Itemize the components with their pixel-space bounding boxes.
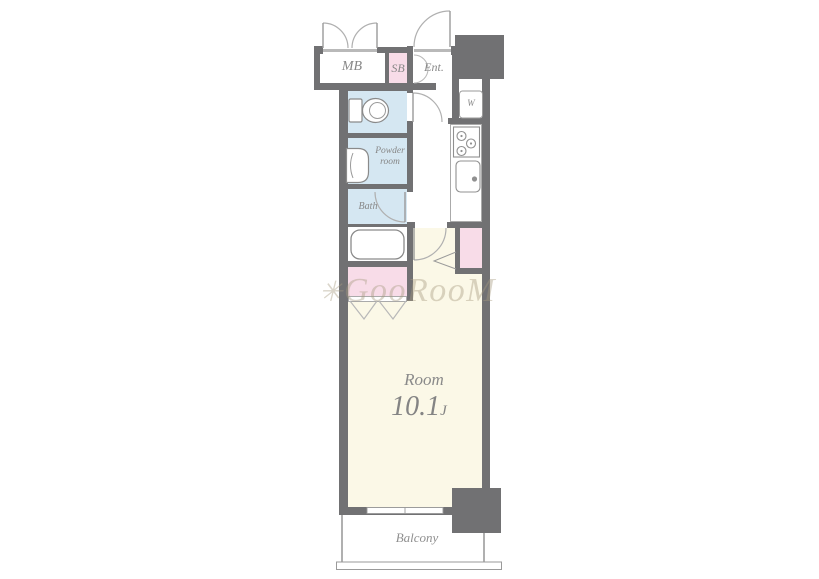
wall	[455, 228, 460, 268]
entrance-label: Ent.	[424, 61, 444, 74]
wall-under-mb-doors	[323, 49, 377, 52]
room-size-label: 10.1J	[391, 392, 447, 421]
wall	[340, 85, 413, 91]
watermark: ✳GooRooM	[319, 272, 496, 310]
powder-room-label-line1: Powder	[375, 146, 405, 157]
pillar-top	[455, 35, 504, 79]
powder-room-label: Powder room	[375, 146, 405, 168]
floor-plan: MB SB Ent. W Powder room Bath Room 10.1J…	[0, 0, 819, 579]
toilet-room	[348, 91, 407, 133]
wall	[385, 52, 389, 83]
bath-label: Bath	[359, 202, 378, 213]
closet-right	[460, 228, 482, 268]
washer-label: W	[467, 99, 475, 108]
kitchen-counter	[450, 124, 482, 222]
room-size-unit: J	[440, 403, 447, 419]
entrance-door-arc	[414, 11, 450, 47]
room-size-value: 10.1	[391, 391, 440, 422]
toilet-door-arc	[413, 93, 442, 122]
wall	[407, 87, 413, 93]
mb-label: MB	[342, 60, 362, 75]
sb-label: SB	[391, 62, 404, 75]
room-label: Room	[404, 371, 444, 389]
balcony-label: Balcony	[396, 531, 439, 545]
watermark-mark: ✳	[319, 277, 344, 308]
mb-door-arcs	[323, 23, 377, 48]
wall-bottom	[339, 507, 455, 515]
watermark-text: GooRooM	[344, 272, 496, 309]
wall	[347, 224, 407, 227]
wall	[347, 133, 407, 138]
powder-room-label-line2: room	[375, 157, 405, 168]
pillar-bottom	[452, 488, 501, 533]
wall	[347, 184, 407, 189]
wall-under-entry-door	[414, 49, 451, 52]
bathtub-icon	[351, 230, 404, 259]
wall	[407, 121, 413, 192]
wall	[347, 261, 407, 267]
